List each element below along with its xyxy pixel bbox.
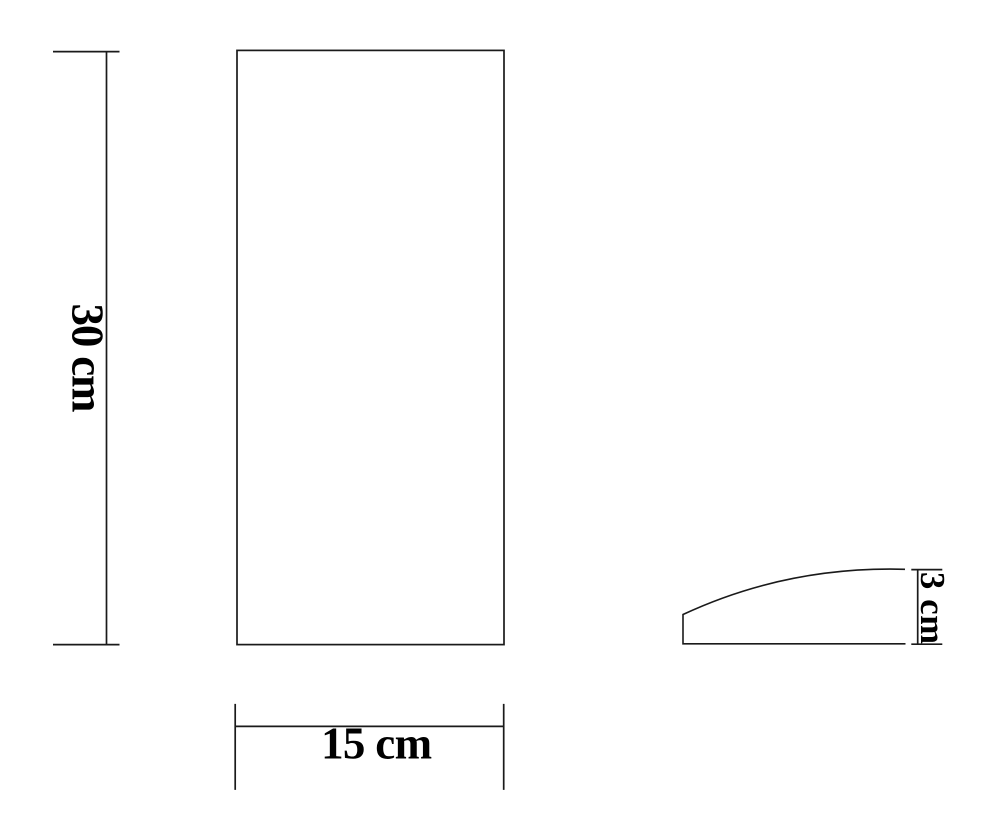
svg-text:3 cm: 3 cm (913, 572, 951, 644)
svg-text:15 cm: 15 cm (321, 719, 432, 769)
svg-text:30 cm: 30 cm (63, 304, 113, 413)
